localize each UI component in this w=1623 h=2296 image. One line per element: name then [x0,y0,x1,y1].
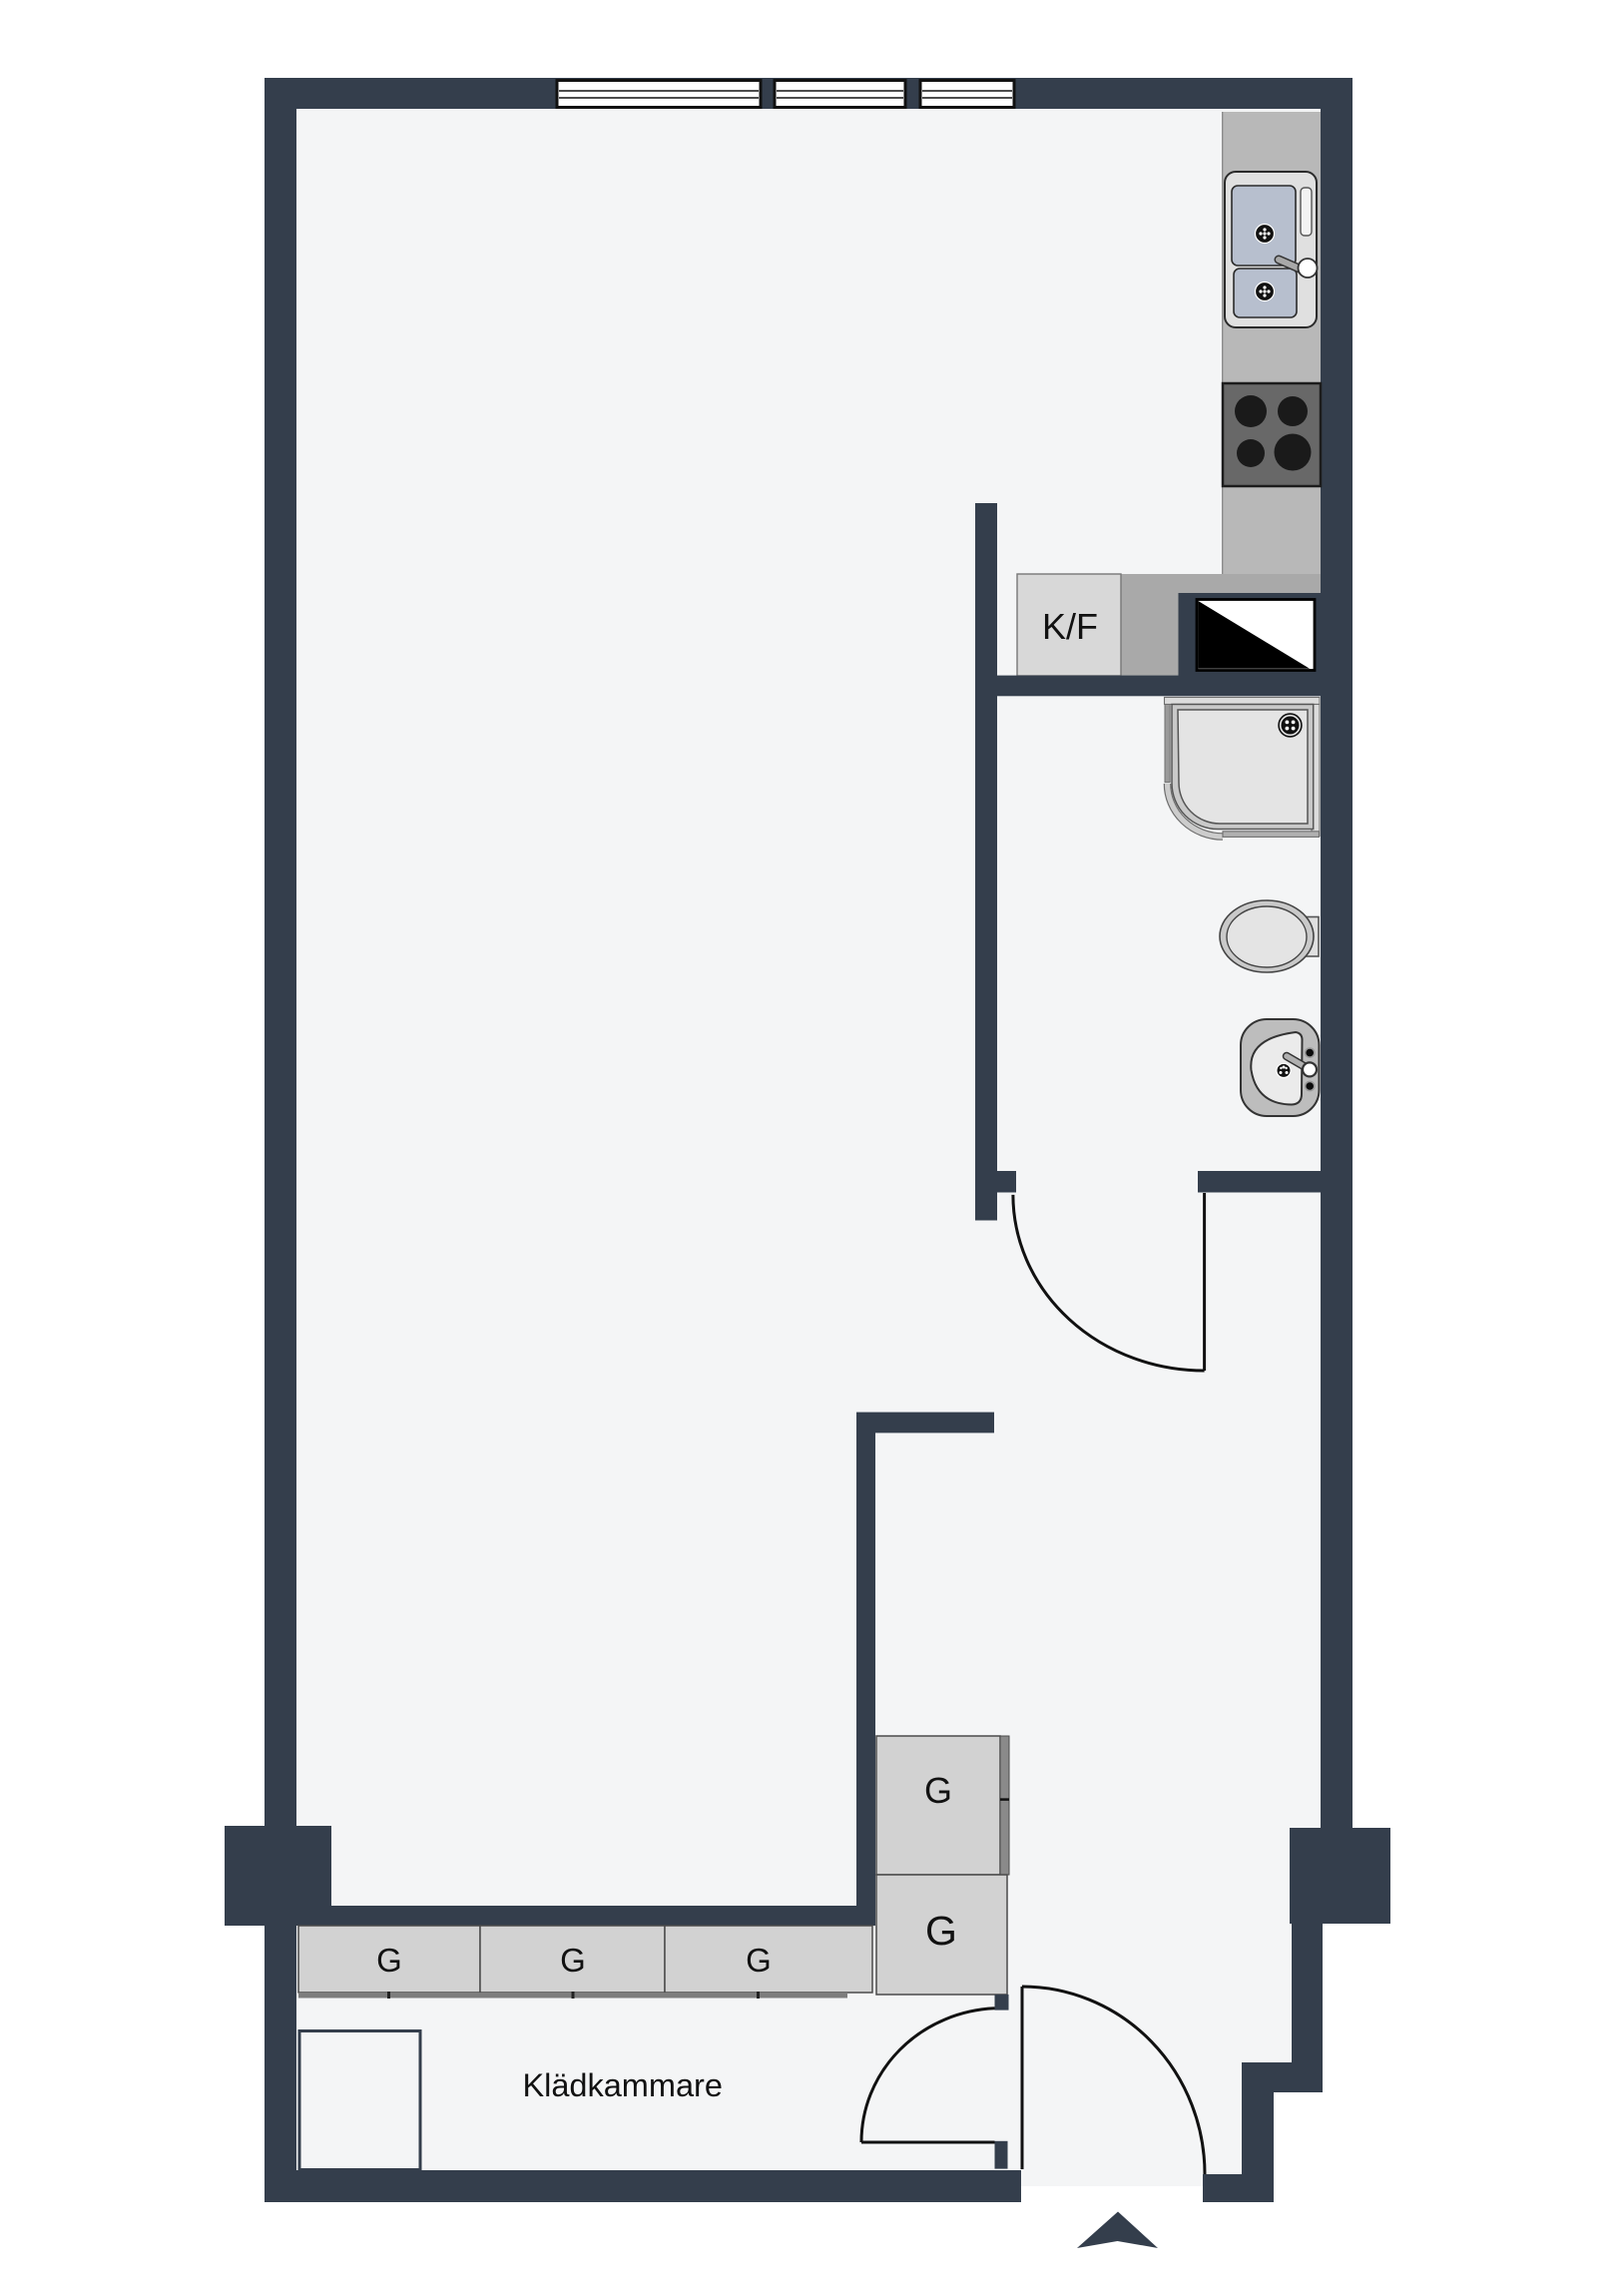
svg-text:Klädkammare: Klädkammare [522,2067,723,2103]
svg-text:G: G [924,1770,952,1811]
svg-text:G: G [376,1942,402,1979]
svg-text:G: G [925,1908,957,1954]
svg-text:K/F: K/F [1042,606,1098,647]
svg-text:G: G [560,1942,586,1979]
svg-text:G: G [746,1942,772,1979]
